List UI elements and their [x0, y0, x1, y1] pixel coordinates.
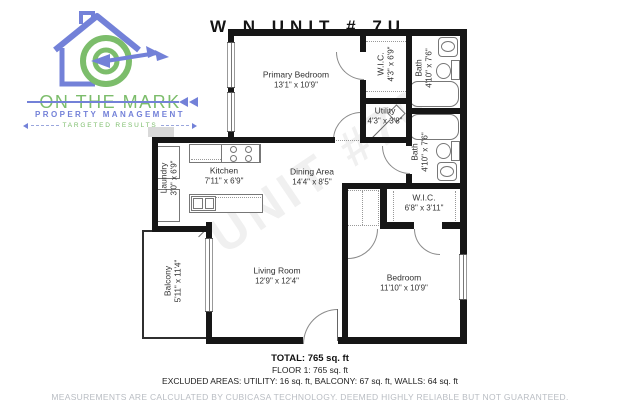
label-wic2: W.I.C.6'8" x 3'11" — [405, 192, 444, 213]
total-area: TOTAL: 765 sq. ft — [0, 353, 620, 364]
wall-utility-bottom — [360, 137, 412, 143]
window-primary-2 — [227, 92, 235, 132]
tagline-right-dash — [161, 125, 189, 126]
door-arc-entry — [303, 309, 338, 344]
wall-living-left-top — [206, 222, 212, 238]
label-utility: Utility4'3" x 3'8" — [368, 105, 403, 126]
burner-2 — [230, 155, 237, 162]
tagline-left-arrow-icon — [23, 123, 28, 129]
wall-kitchen-bottom — [152, 226, 212, 232]
door-arc-bath2 — [382, 146, 410, 174]
wall-wic2-top — [342, 183, 467, 189]
label-bath2: Bath4'10" x 7'6" — [409, 132, 430, 171]
burner-4 — [245, 155, 252, 162]
door-arc-wic2 — [414, 229, 440, 255]
bath1-toilet-tank — [451, 60, 460, 80]
wall-living-left-bottom — [206, 312, 212, 344]
door-arc-bedroom — [348, 229, 378, 259]
floor-plan-page: ON THE MARK PROPERTY MANAGEMENT TARGETED… — [0, 0, 620, 414]
wall-bedroom-left — [342, 183, 348, 344]
label-wic1: W.I.C.4'3" x 6'9" — [375, 47, 396, 82]
closet-shelf-line — [362, 191, 363, 225]
sink-basin-right — [205, 198, 214, 209]
wic2-shelf-left — [393, 191, 394, 221]
house-target-logo-icon — [43, 8, 177, 94]
label-primary-bedroom: Primary Bedroom13'1" x 10'9" — [263, 69, 329, 90]
company-logo: ON THE MARK PROPERTY MANAGEMENT TARGETED… — [15, 4, 205, 134]
label-dining: Dining Area14'4" x 8'5" — [290, 166, 334, 187]
brand-tagline: TARGETED RESULTS — [15, 122, 205, 129]
disclaimer-text: MEASUREMENTS ARE CALCULATED BY CUBICASA … — [0, 392, 620, 402]
floor-area: FLOOR 1: 765 sq. ft — [0, 365, 620, 375]
wall-laundry-left — [152, 137, 158, 232]
door-arc-wic1 — [336, 52, 364, 80]
wall-bottom-left — [206, 337, 303, 344]
label-kitchen: Kitchen7'11" x 6'9" — [205, 165, 244, 186]
label-balcony: Balcony5'11" x 11'4" — [162, 260, 183, 303]
wall-wic-left-top — [360, 29, 366, 52]
wic1-shelf-top — [366, 41, 406, 42]
label-living-room: Living Room12'9" x 12'4" — [253, 265, 300, 286]
wall-bedroom-top-a — [381, 222, 414, 229]
window-bedroom — [459, 254, 467, 300]
bath2-toilet-bowl — [436, 143, 451, 159]
wall-primary-bottom — [228, 137, 335, 143]
wall-kitchen-top — [152, 137, 234, 143]
primary-door-threshold — [336, 140, 359, 141]
bath2-sink-bowl — [440, 166, 454, 177]
window-primary-1 — [227, 42, 235, 88]
label-bedroom: Bedroom11'10" x 10'9" — [380, 272, 428, 293]
brand-subtitle: PROPERTY MANAGEMENT — [15, 110, 205, 119]
bath1-toilet-bowl — [436, 63, 451, 79]
label-bath1: Bath4'10" x 7'6" — [413, 48, 434, 87]
tagline-right-arrow-icon — [192, 123, 197, 129]
wall-bath-divider — [406, 108, 467, 114]
excluded-areas: EXCLUDED AREAS: UTILITY: 16 sq. ft, BALC… — [0, 376, 620, 386]
tagline-text: TARGETED RESULTS — [62, 122, 157, 129]
burner-1 — [230, 146, 237, 153]
sink-basin-left — [193, 198, 203, 209]
brand-arrowheads — [179, 97, 198, 107]
wall-top — [228, 29, 467, 36]
tagline-left-dash — [31, 125, 59, 126]
wic1-shelf-bottom — [366, 91, 406, 92]
area-summary: TOTAL: 765 sq. ft FLOOR 1: 765 sq. ft EX… — [0, 353, 620, 402]
label-laundry: Laundry3'0" x 6'9" — [158, 161, 179, 196]
wic2-shelf-right — [455, 191, 456, 221]
stove — [221, 144, 260, 163]
burner-3 — [245, 146, 252, 153]
sliding-door-balcony — [205, 238, 213, 312]
bath2-toilet-tank — [451, 141, 460, 161]
brand-strikethrough-arrow — [27, 101, 179, 103]
door-arc-primary — [333, 112, 361, 140]
bath1-sink-bowl — [441, 41, 455, 52]
wall-bottom-right — [338, 337, 467, 344]
wall-wic-left-bottom — [360, 80, 366, 143]
wall-wic-utility-divider — [360, 98, 412, 104]
wall-bedroom-top-b — [442, 222, 467, 229]
